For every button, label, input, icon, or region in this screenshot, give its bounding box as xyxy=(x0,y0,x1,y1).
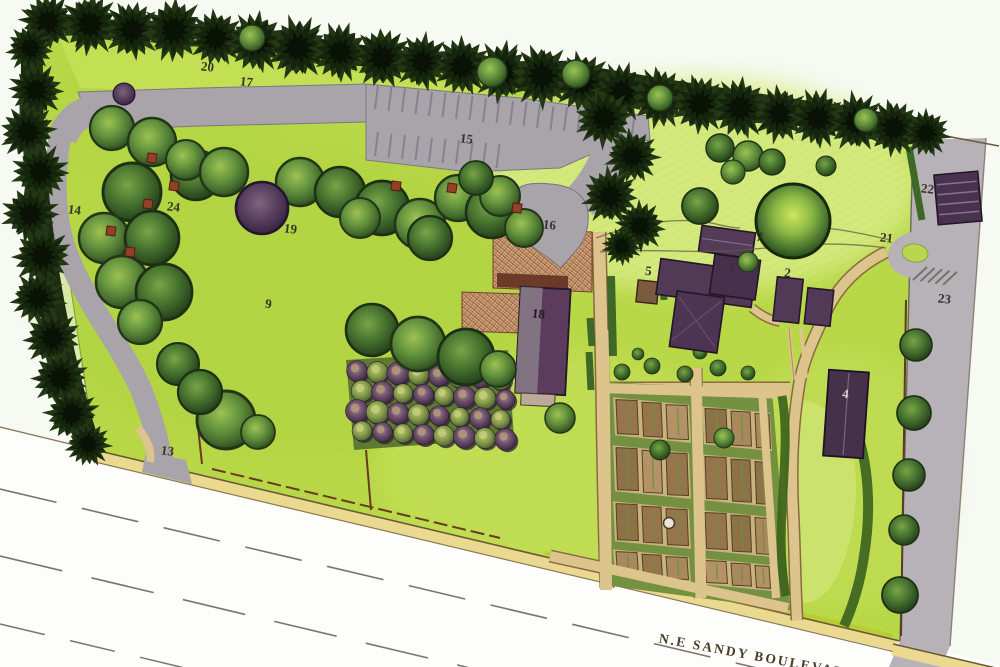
svg-text:13: 13 xyxy=(160,442,175,459)
svg-text:18: 18 xyxy=(531,305,546,322)
svg-text:21: 21 xyxy=(879,229,894,245)
svg-text:16: 16 xyxy=(542,216,557,233)
svg-text:20: 20 xyxy=(200,58,215,74)
svg-text:14: 14 xyxy=(67,201,82,218)
svg-text:19: 19 xyxy=(283,220,298,237)
svg-text:22: 22 xyxy=(920,180,935,196)
svg-text:24: 24 xyxy=(166,198,181,215)
svg-text:15: 15 xyxy=(459,130,474,147)
svg-text:17: 17 xyxy=(239,73,254,90)
svg-text:23: 23 xyxy=(937,290,952,307)
